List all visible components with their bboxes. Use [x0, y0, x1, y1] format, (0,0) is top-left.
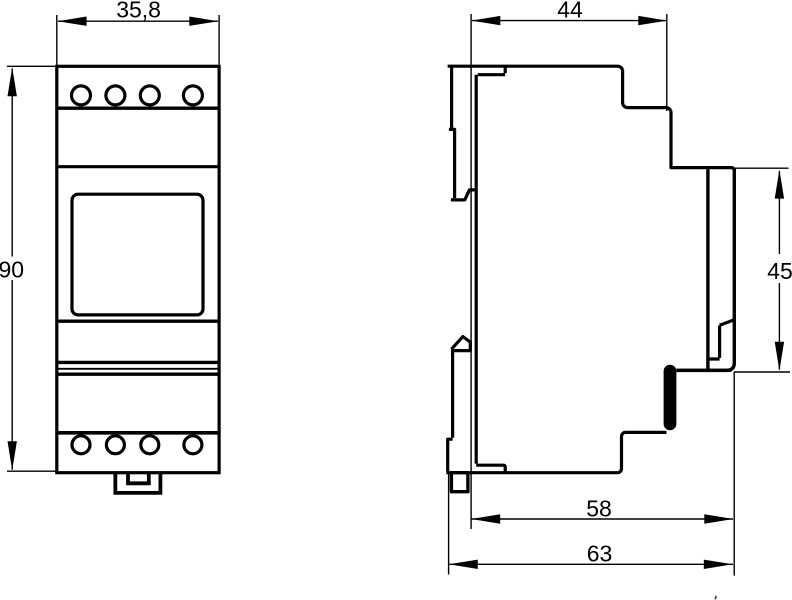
svg-text:45: 45: [767, 258, 792, 284]
svg-text:90: 90: [0, 257, 24, 283]
svg-text:44: 44: [557, 0, 583, 23]
svg-text:35,8: 35,8: [116, 0, 161, 23]
svg-text:63: 63: [587, 540, 613, 566]
svg-text:58: 58: [586, 495, 612, 521]
